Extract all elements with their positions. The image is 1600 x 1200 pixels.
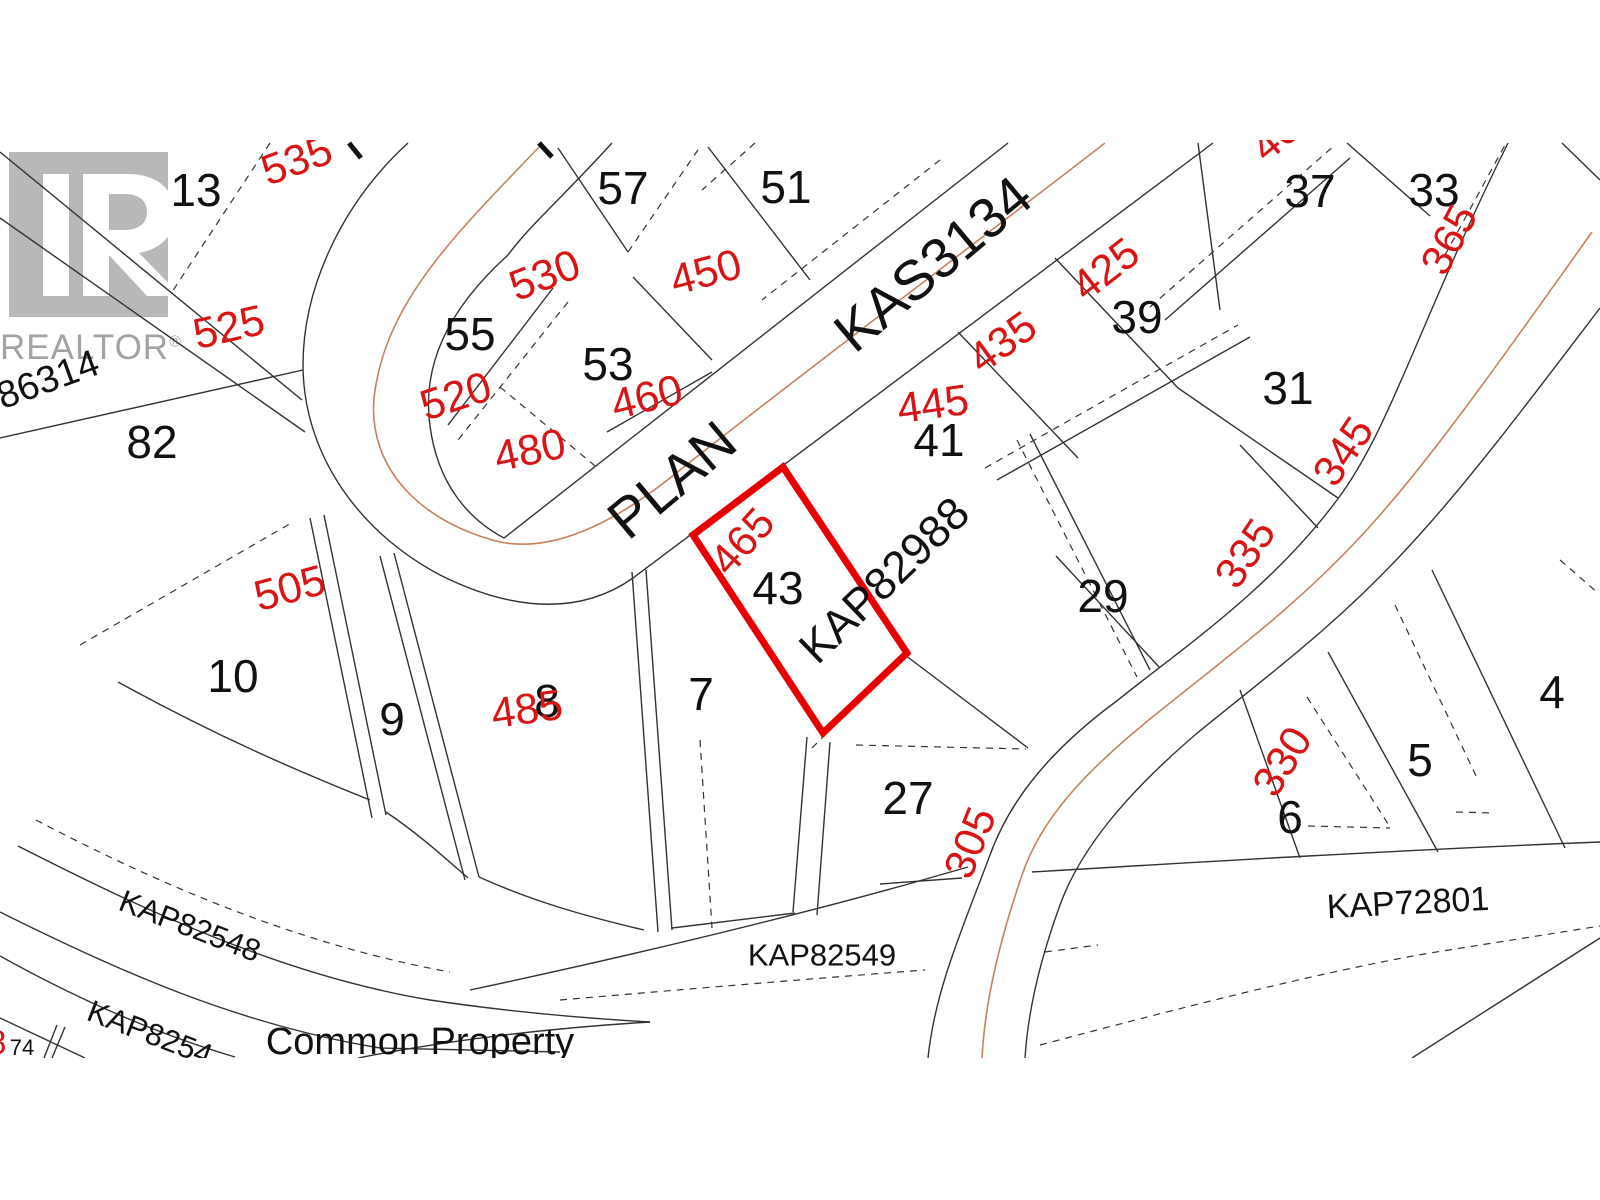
plat-map: REALTOR®	[0, 0, 1600, 1200]
lot-13: 13	[170, 167, 221, 213]
map-area: REALTOR®	[0, 140, 1600, 1058]
lot-7: 7	[688, 671, 714, 717]
dashed-northwest	[80, 143, 293, 645]
lot-43: 43	[752, 565, 803, 611]
diagonal-road-centerline	[982, 232, 1592, 1058]
lot-39: 39	[1111, 294, 1162, 340]
address-485: 485	[488, 684, 565, 737]
diagonal-road-east-edge	[1025, 308, 1600, 1058]
lot-57: 57	[597, 165, 648, 211]
address-partial-left: 8	[0, 1026, 6, 1058]
common-property-label: Common Property	[266, 1023, 574, 1058]
plan-kap82549: KAP82549	[748, 940, 896, 971]
lot-37: 37	[1284, 168, 1335, 214]
lot-55: 55	[444, 311, 495, 357]
top-edge-fragments	[349, 143, 552, 158]
south-boundary-lines	[880, 842, 1600, 1058]
lot-9: 9	[379, 696, 405, 742]
plan-kap72801: KAP72801	[1326, 882, 1490, 924]
northeast-parcel-lines	[1165, 143, 1600, 320]
lot-31: 31	[1262, 365, 1313, 411]
lot-82: 82	[126, 419, 177, 465]
lot-4: 4	[1539, 669, 1565, 715]
corner-sliver-lines	[44, 1025, 65, 1058]
lot-10: 10	[207, 653, 258, 699]
address-445: 445	[894, 379, 971, 432]
lot-74: 74	[10, 1037, 34, 1058]
lot-51: 51	[760, 164, 811, 210]
lot-27: 27	[882, 775, 933, 821]
lot-29: 29	[1077, 573, 1128, 619]
lot-5: 5	[1407, 737, 1433, 783]
